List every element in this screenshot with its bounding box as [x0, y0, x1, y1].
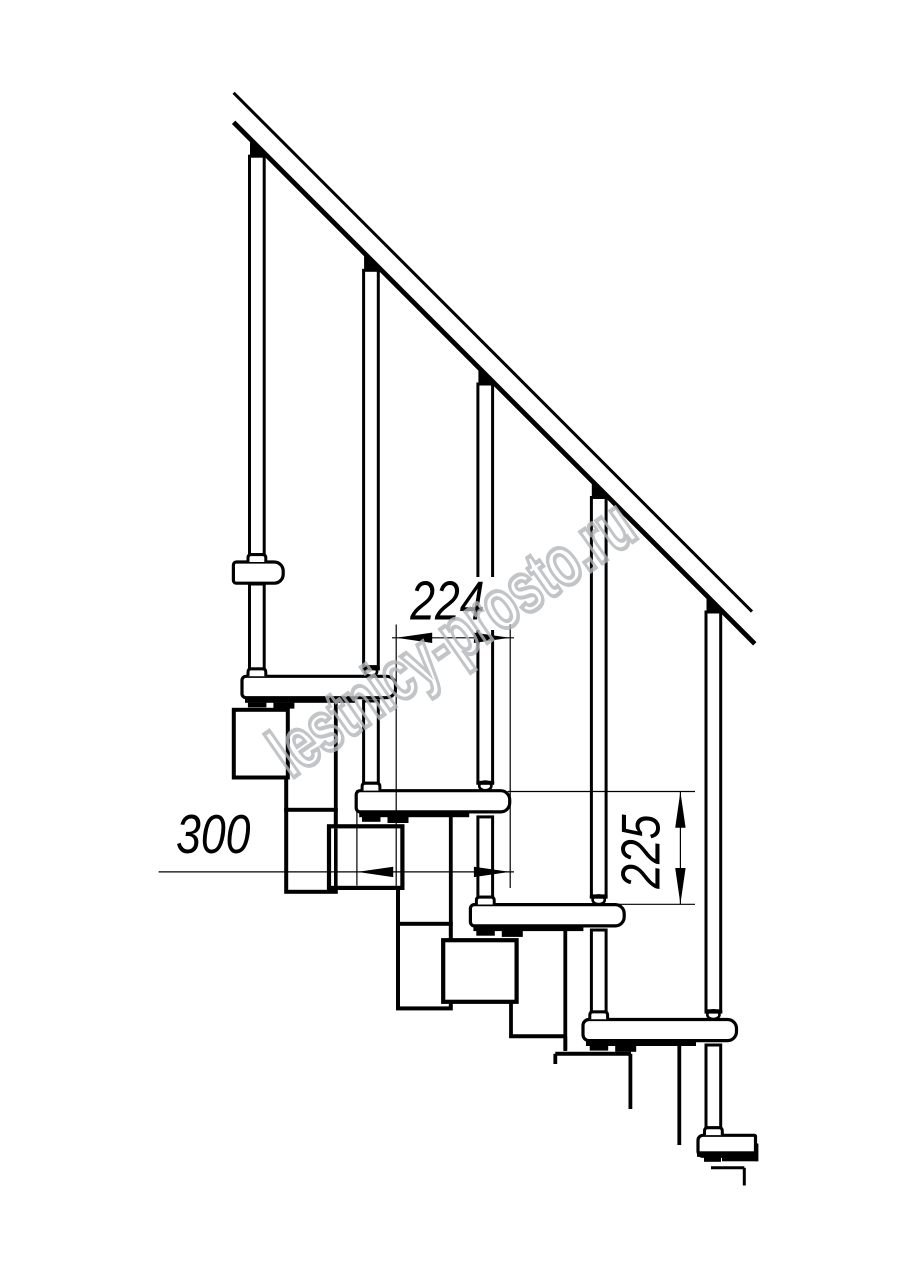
svg-text:225: 225: [610, 814, 672, 889]
svg-text:300: 300: [176, 803, 250, 865]
